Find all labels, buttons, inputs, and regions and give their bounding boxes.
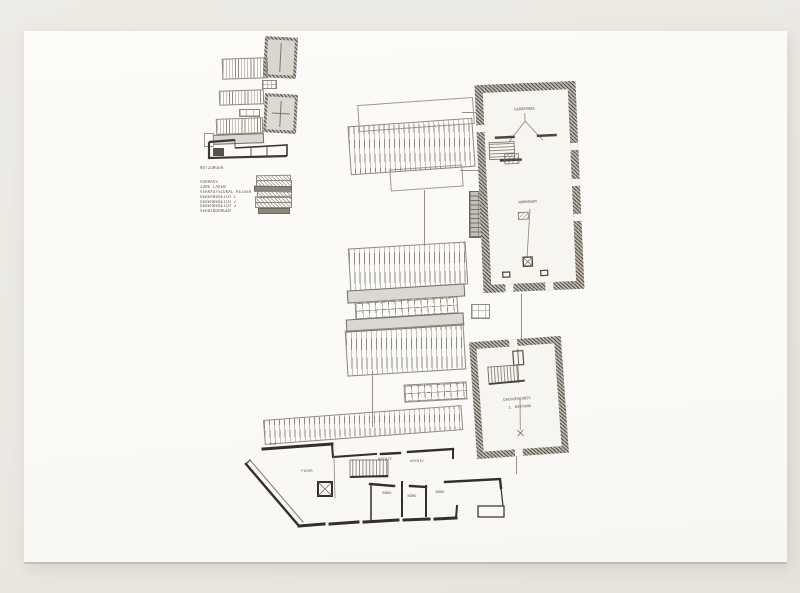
legend-item-label: UEBERBEREICH 3 [200,204,236,209]
door-opening [505,284,513,292]
garderobe-label: GARDEROBE [514,107,535,112]
door-opening [572,179,580,186]
archiv-label: ARCHIV [378,457,392,461]
key-building-top [263,36,298,79]
door-opening [476,125,484,132]
main-building-details [483,89,576,285]
legend-title: NUTZUNGEN [200,166,223,171]
legend-item-label: ZONE LADEN [200,185,226,190]
roof-stripes [345,323,467,376]
wohnraum-label: WOHNRAUM [518,200,536,205]
connector-line [424,190,425,246]
main-building: GARDEROBE WOHNRAUM [475,81,585,293]
connector-line [521,294,522,340]
foyer-label: FOYER [301,469,312,473]
key-roof-bar [222,57,269,80]
door-opening [570,143,578,150]
legend-item-label: VERKAUFSLOKAL REISER [200,190,251,195]
office-wing-plan [240,402,520,542]
buero-label: BÜRO [435,490,444,494]
key-grid-block [262,80,277,89]
scan-photo: NUTZUNGEN VORHAUS ZONE LADEN VERKAUFSLOK… [0,0,800,593]
key-roof-bar [219,89,264,106]
key-roof-bar [216,117,264,135]
small-grid-block [471,304,490,319]
buero-label: BÜRO [407,494,416,498]
buero-label: BÜRO [382,491,391,495]
key-grid-block [239,109,260,117]
door-opening [545,282,553,290]
key-building-bottom [205,136,291,162]
door-opening [573,214,581,221]
small-grid-block [404,381,468,402]
legend-swatch [258,208,290,214]
key-building-mid [263,93,298,134]
legend-item-label: VERBINDUNGEN [200,209,231,214]
note-label: A.6 [270,442,277,446]
door-opening [509,339,517,347]
archiv-label: ARCHIV [410,459,424,463]
legend-item-label: UEBERBEREICH 1 [200,195,236,200]
legend-item-label: VORHAUS [200,180,218,185]
